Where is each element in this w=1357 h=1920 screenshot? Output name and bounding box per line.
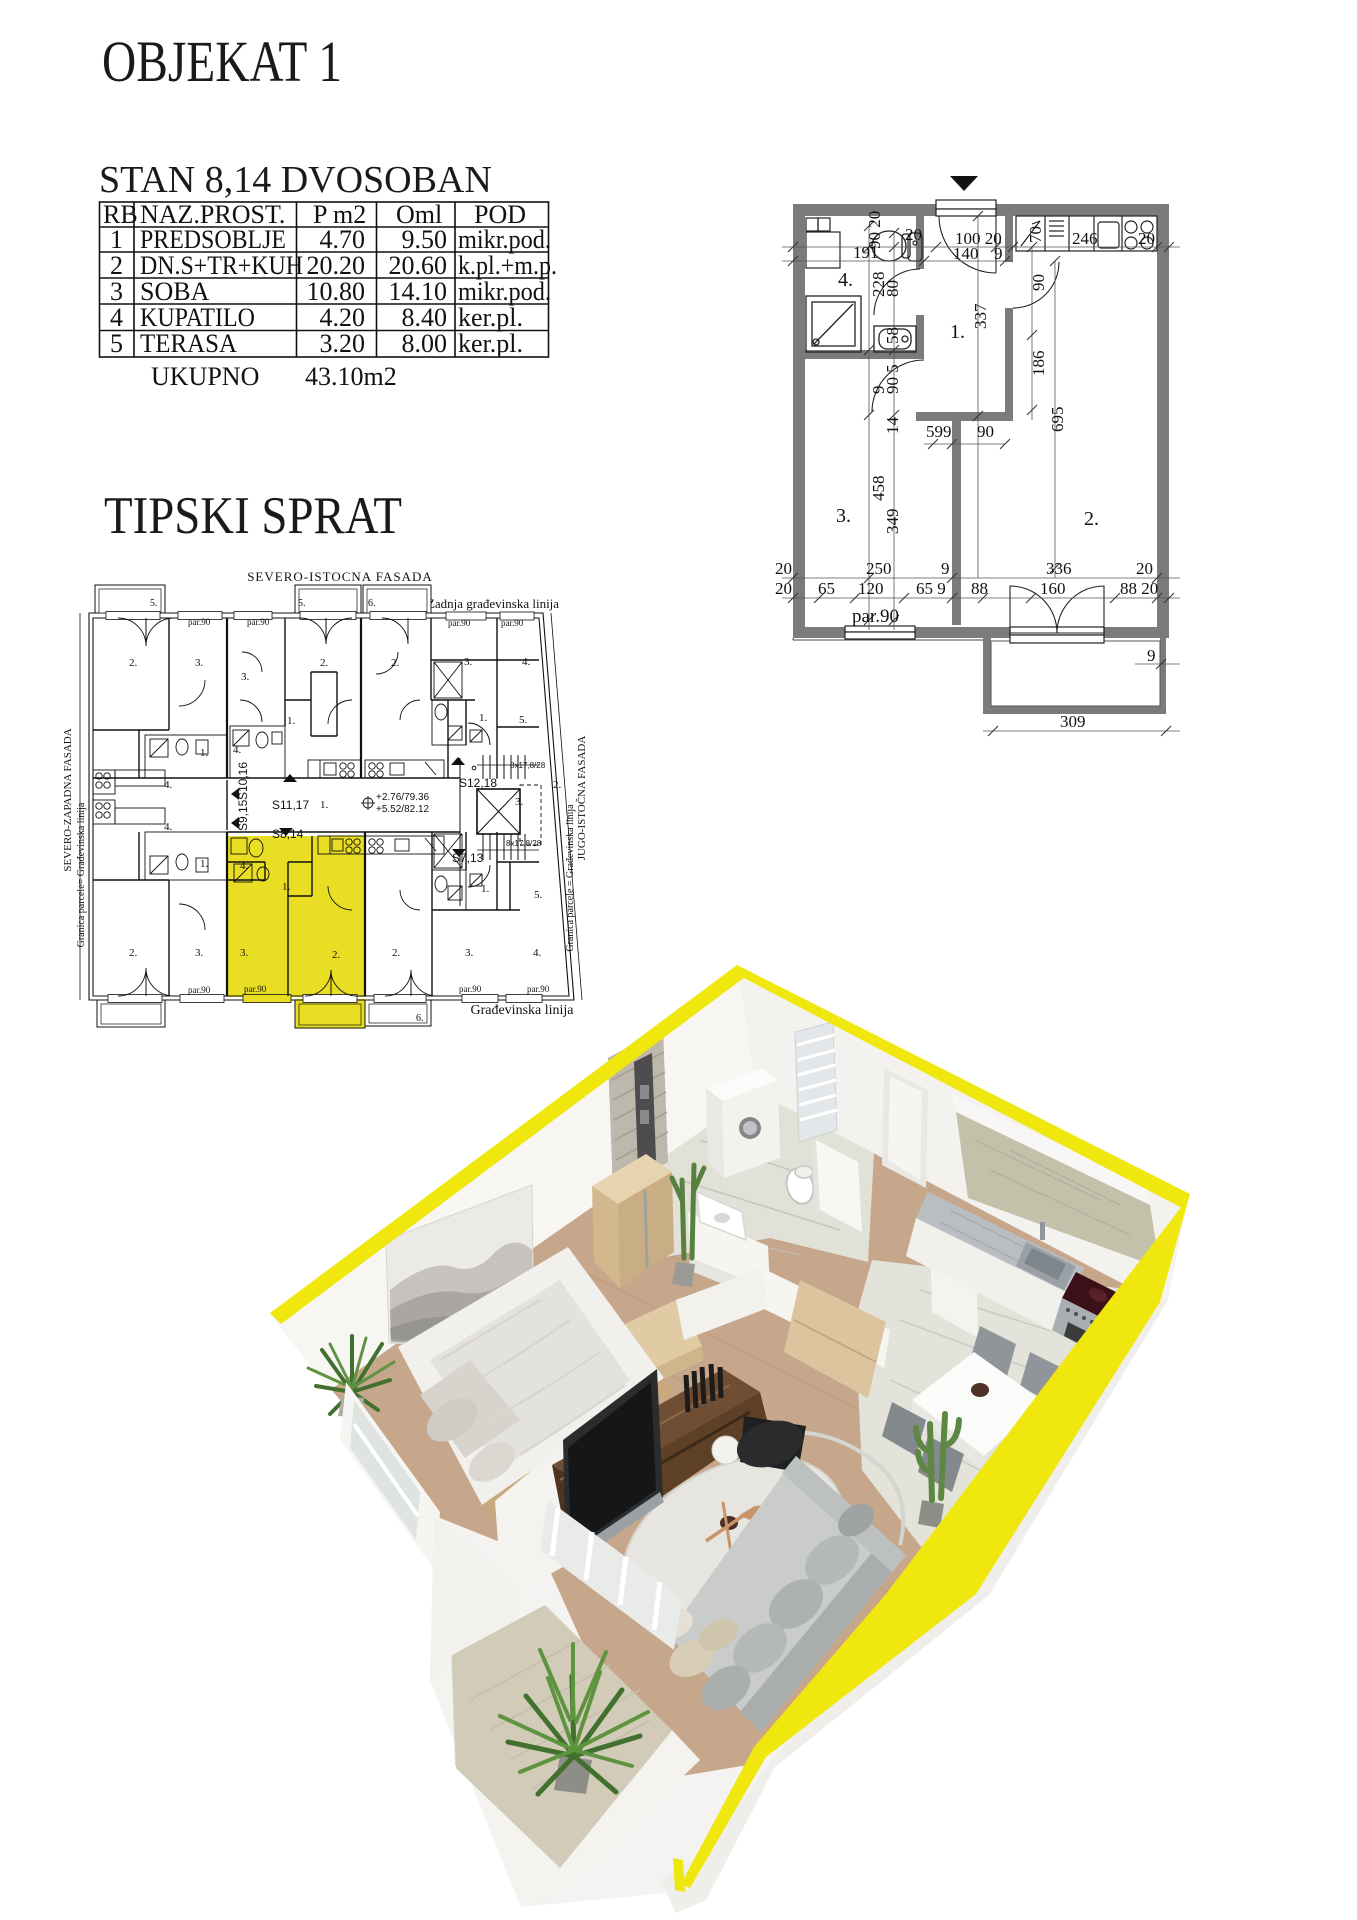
svg-text:par.90: par.90 — [188, 985, 211, 995]
svg-text:Građevinska linija: Građevinska linija — [470, 1003, 574, 1018]
svg-text:20: 20 — [775, 579, 792, 598]
svg-text:par.90: par.90 — [244, 984, 267, 994]
svg-text:10.80: 10.80 — [307, 277, 366, 306]
svg-text:20: 20 — [905, 225, 922, 244]
svg-text:309: 309 — [1060, 712, 1086, 731]
svg-text:4.: 4. — [164, 779, 173, 791]
svg-text:PREDSOBLJE: PREDSOBLJE — [140, 225, 286, 254]
svg-text:8.40: 8.40 — [402, 303, 448, 332]
svg-text:90: 90 — [977, 422, 994, 441]
svg-text:90 5: 90 5 — [883, 364, 902, 394]
svg-text:TIPSKI SPRAT: TIPSKI SPRAT — [104, 487, 402, 545]
svg-text:OBJEKAT 1: OBJEKAT 1 — [102, 29, 342, 94]
svg-text:Granica parcele= Građevinska l: Granica parcele= Građevinska linija — [76, 802, 87, 947]
svg-text:20.60: 20.60 — [389, 251, 448, 280]
svg-text:3.: 3. — [195, 947, 204, 959]
svg-text:4.: 4. — [533, 947, 542, 959]
svg-text:160: 160 — [1040, 579, 1066, 598]
svg-text:2.: 2. — [129, 947, 138, 959]
svg-text:1.: 1. — [481, 883, 490, 895]
svg-text:mikr.pod.: mikr.pod. — [458, 225, 551, 254]
svg-text:par.90: par.90 — [459, 984, 482, 994]
svg-text:1.: 1. — [320, 799, 329, 811]
svg-text:JUGO-ISTOČNA FASADA: JUGO-ISTOČNA FASADA — [576, 736, 588, 861]
svg-text:2: 2 — [110, 251, 123, 280]
svg-text:20: 20 — [1138, 229, 1155, 248]
svg-text:SEVERO-ZAPADNA FASADA: SEVERO-ZAPADNA FASADA — [62, 728, 74, 871]
svg-text:9: 9 — [994, 244, 1003, 263]
svg-text:3.: 3. — [240, 947, 249, 959]
svg-text:1.: 1. — [950, 321, 965, 343]
svg-text:4.: 4. — [240, 860, 249, 872]
svg-text:4.: 4. — [233, 744, 242, 756]
svg-text:65 9: 65 9 — [916, 579, 946, 598]
svg-text:4.70: 4.70 — [320, 225, 366, 254]
svg-text:65: 65 — [818, 579, 835, 598]
svg-text:3.: 3. — [836, 505, 851, 527]
svg-text:8x17,8/28: 8x17,8/28 — [506, 839, 542, 848]
svg-text:6.: 6. — [416, 1013, 424, 1024]
svg-text:140: 140 — [953, 244, 979, 263]
svg-text:DN.S+TR+KUH: DN.S+TR+KUH — [140, 251, 303, 280]
svg-text:STAN 8,14 DVOSOBAN: STAN 8,14 DVOSOBAN — [99, 159, 492, 201]
svg-text:2.: 2. — [391, 657, 400, 669]
svg-text:4.: 4. — [522, 656, 531, 668]
svg-text:2.: 2. — [129, 657, 138, 669]
svg-text:1.: 1. — [200, 747, 209, 759]
svg-text:3.: 3. — [241, 671, 250, 683]
svg-text:par.90: par.90 — [448, 618, 471, 628]
svg-text:58: 58 — [883, 327, 902, 344]
svg-text:S12,18: S12,18 — [459, 776, 497, 790]
svg-text:250: 250 — [866, 559, 892, 578]
svg-text:mikr.pod.: mikr.pod. — [458, 277, 551, 306]
svg-text:88 20: 88 20 — [1120, 579, 1158, 598]
svg-text:par.90: par.90 — [852, 606, 899, 627]
svg-text:3: 3 — [110, 277, 123, 306]
svg-text:599: 599 — [926, 422, 952, 441]
svg-text:9: 9 — [1147, 646, 1156, 665]
svg-text:par.90: par.90 — [188, 617, 211, 627]
svg-text:1.: 1. — [282, 881, 291, 893]
svg-text:5.: 5. — [519, 714, 528, 726]
svg-text:S11,17: S11,17 — [272, 798, 309, 812]
svg-text:349: 349 — [883, 509, 902, 535]
svg-text:1: 1 — [110, 225, 123, 254]
svg-text:KUPATILO: KUPATILO — [140, 303, 255, 332]
svg-text:par.90: par.90 — [247, 617, 270, 627]
svg-text:1.: 1. — [479, 712, 488, 724]
svg-text:2.: 2. — [320, 657, 329, 669]
svg-text:Zadnja građevinska linija: Zadnja građevinska linija — [427, 596, 559, 611]
svg-text:1.: 1. — [287, 715, 296, 727]
svg-text:246: 246 — [1072, 229, 1098, 248]
svg-text:336: 336 — [1046, 559, 1072, 578]
svg-text:ker.pl.: ker.pl. — [458, 303, 523, 332]
svg-text:8x17,8/28: 8x17,8/28 — [510, 761, 546, 770]
svg-text:5.: 5. — [298, 598, 306, 609]
svg-text:2.: 2. — [553, 779, 562, 791]
svg-text:4.20: 4.20 — [320, 303, 366, 332]
svg-text:90: 90 — [1029, 274, 1048, 291]
svg-text:695: 695 — [1048, 407, 1067, 433]
svg-text:80: 80 — [883, 280, 902, 297]
svg-text:14: 14 — [883, 417, 902, 435]
svg-text:4.: 4. — [164, 821, 173, 833]
svg-text:186: 186 — [1029, 351, 1048, 377]
svg-text:3.: 3. — [195, 657, 204, 669]
svg-text:3.: 3. — [515, 796, 524, 808]
svg-text:5.: 5. — [534, 889, 543, 901]
svg-text:1.: 1. — [200, 858, 209, 870]
svg-text:337: 337 — [971, 303, 990, 329]
svg-text:5: 5 — [110, 329, 123, 358]
svg-text:2.: 2. — [1084, 508, 1099, 530]
svg-text:par.90: par.90 — [501, 618, 524, 628]
svg-text:9: 9 — [941, 559, 950, 578]
svg-text:ker.pl.: ker.pl. — [458, 329, 523, 358]
svg-text:2.: 2. — [332, 949, 341, 961]
svg-text:3.: 3. — [464, 656, 473, 668]
svg-text:88: 88 — [971, 579, 988, 598]
svg-text:20.20: 20.20 — [307, 251, 366, 280]
svg-text:70: 70 — [1026, 226, 1045, 243]
svg-text:TERASA: TERASA — [140, 329, 237, 358]
svg-text:20: 20 — [1136, 559, 1153, 578]
svg-text:Granica parcele = Građevinska: Granica parcele = Građevinska linija — [565, 804, 576, 952]
svg-text:k.pl.+m.p.: k.pl.+m.p. — [458, 251, 557, 280]
svg-text:90 20: 90 20 — [865, 211, 884, 249]
svg-text:+2.76/79.36: +2.76/79.36 — [376, 792, 430, 803]
svg-text:8.00: 8.00 — [402, 329, 448, 358]
svg-text:UKUPNO: UKUPNO — [151, 362, 259, 391]
svg-text:SEVERO-ISTOCNA FASADA: SEVERO-ISTOCNA FASADA — [247, 569, 433, 584]
svg-text:SOBA: SOBA — [140, 277, 210, 306]
svg-text:4.: 4. — [838, 269, 853, 291]
svg-text:20: 20 — [775, 559, 792, 578]
svg-text:14.10: 14.10 — [389, 277, 448, 306]
svg-text:5.: 5. — [150, 598, 158, 609]
svg-text:4: 4 — [110, 303, 123, 332]
svg-text:6.: 6. — [368, 598, 376, 609]
svg-text:3.: 3. — [465, 947, 474, 959]
svg-text:par.90: par.90 — [527, 984, 550, 994]
svg-text:3.20: 3.20 — [320, 329, 366, 358]
svg-text:120: 120 — [858, 579, 884, 598]
svg-text:2.: 2. — [392, 947, 401, 959]
svg-text:+5.52/82.12: +5.52/82.12 — [376, 804, 430, 815]
svg-text:43.10m2: 43.10m2 — [305, 362, 397, 391]
svg-text:9.50: 9.50 — [402, 225, 448, 254]
svg-text:458: 458 — [869, 476, 888, 502]
